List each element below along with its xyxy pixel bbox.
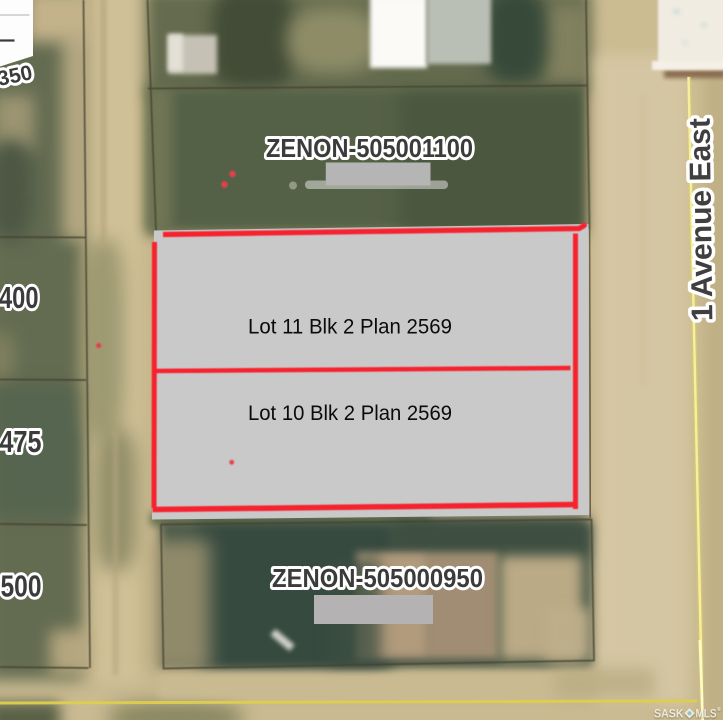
svg-text:ZENON-505000950: ZENON-505000950 bbox=[272, 563, 483, 593]
svg-text:350: 350 bbox=[0, 61, 34, 91]
svg-text:Lot 11 Blk 2 Plan 2569: Lot 11 Blk 2 Plan 2569 bbox=[248, 315, 452, 339]
svg-text:SASK: SASK bbox=[654, 709, 684, 720]
svg-text:ZENON-505001100: ZENON-505001100 bbox=[266, 133, 473, 163]
svg-text:1 Avenue East: 1 Avenue East bbox=[684, 118, 720, 321]
svg-text:500: 500 bbox=[1, 570, 42, 604]
svg-text:®: ® bbox=[717, 706, 721, 713]
svg-text:Lot 10 Blk 2 Plan 2569: Lot 10 Blk 2 Plan 2569 bbox=[248, 401, 452, 425]
svg-text:400: 400 bbox=[0, 281, 39, 315]
svg-text:MLS: MLS bbox=[696, 709, 717, 720]
svg-text:475: 475 bbox=[0, 425, 42, 459]
